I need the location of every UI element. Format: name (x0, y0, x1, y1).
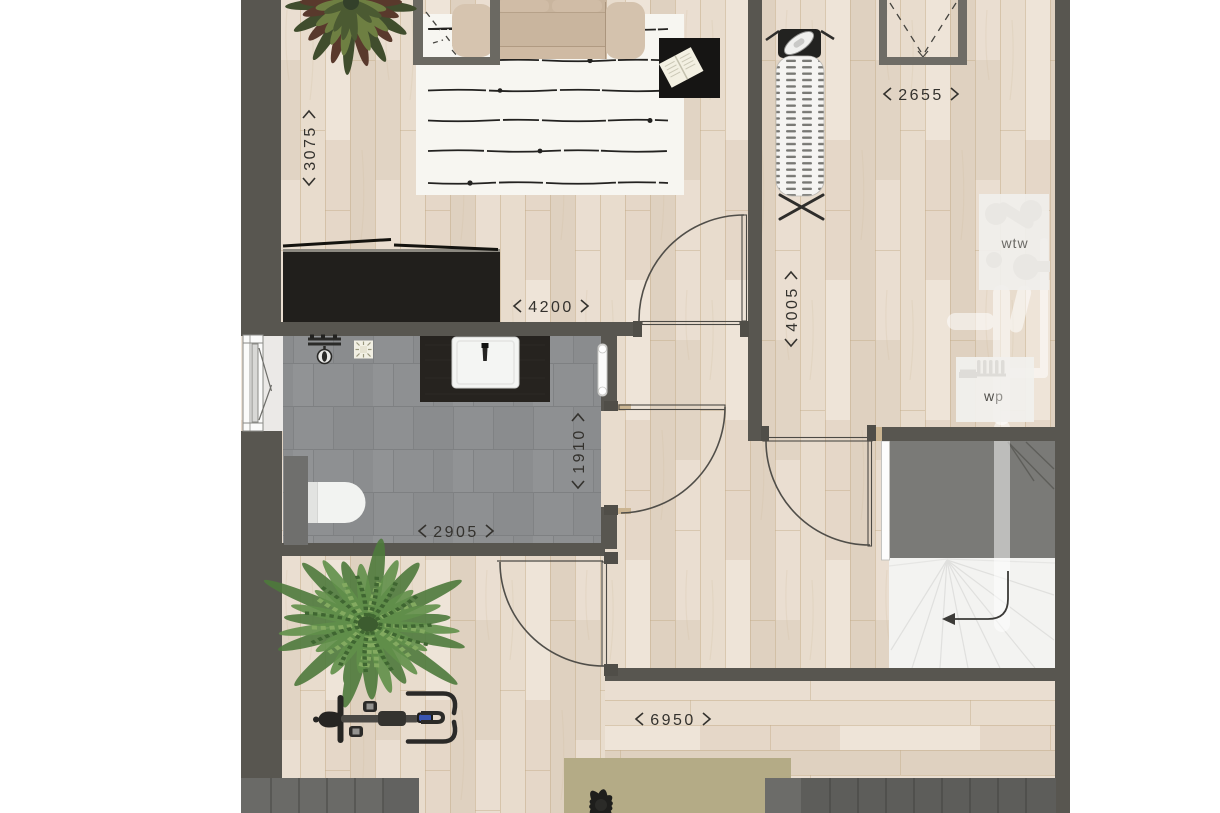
svg-text:wp: wp (983, 388, 1004, 404)
svg-text:4005: 4005 (784, 286, 801, 332)
svg-text:wtw: wtw (1000, 235, 1028, 251)
svg-text:2905: 2905 (433, 524, 479, 541)
svg-text:1910: 1910 (571, 428, 588, 474)
svg-text:6950: 6950 (650, 712, 696, 729)
svg-text:3075: 3075 (302, 125, 319, 171)
svg-text:4200: 4200 (528, 299, 574, 316)
svg-text:2655: 2655 (898, 87, 944, 104)
